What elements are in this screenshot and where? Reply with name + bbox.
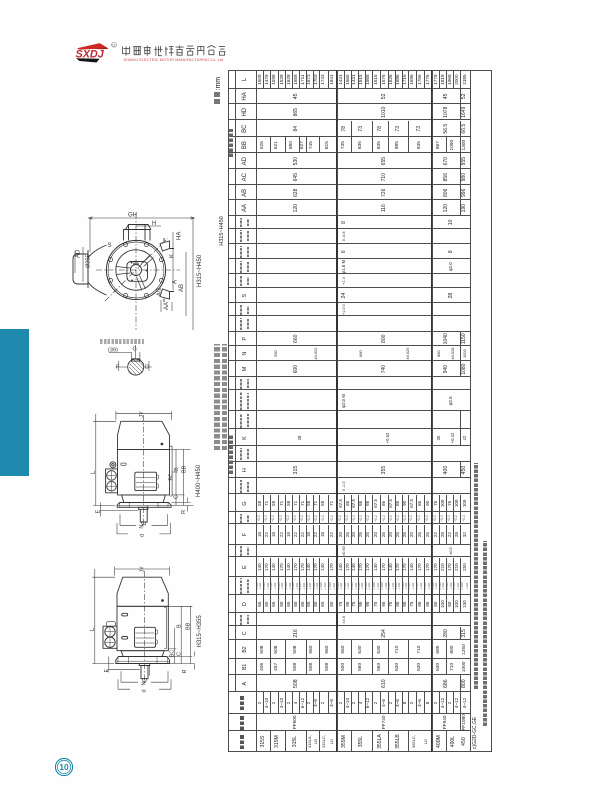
svg-text:F: F bbox=[116, 365, 120, 371]
svg-text:AB: AB bbox=[179, 284, 185, 292]
svg-text:E: E bbox=[95, 510, 101, 514]
svg-text:K: K bbox=[170, 254, 176, 258]
svg-text:D: D bbox=[145, 365, 149, 371]
svg-text:G: G bbox=[133, 347, 137, 353]
svg-text:H: H bbox=[152, 221, 156, 227]
svg-text:d: d bbox=[139, 534, 145, 537]
svg-text:SHANXI ELECTRIC MOTOR MANUF: SHANXI ELECTRIC MOTOR MANUFACTURING Co.,… bbox=[124, 58, 224, 62]
svg-text:BC: BC bbox=[170, 650, 176, 657]
svg-text:R: R bbox=[182, 670, 188, 674]
svg-text:AD: AD bbox=[76, 249, 82, 258]
svg-text:N: N bbox=[139, 525, 145, 529]
svg-text:HA: HA bbox=[177, 232, 183, 240]
svg-text:Ø255: Ø255 bbox=[86, 255, 92, 268]
svg-text:JY: JY bbox=[140, 566, 146, 573]
svg-text:AA: AA bbox=[164, 302, 170, 310]
svg-text:BB: BB bbox=[186, 622, 192, 630]
svg-text:GH: GH bbox=[128, 213, 137, 219]
svg-text:E: E bbox=[104, 669, 110, 673]
svg-text:S: S bbox=[108, 243, 112, 249]
svg-text:N: N bbox=[142, 682, 148, 686]
svg-text:BB: BB bbox=[181, 465, 187, 473]
svg-text:B: B bbox=[176, 624, 182, 628]
svg-text:(39): (39) bbox=[108, 348, 118, 354]
svg-text:H400~H450: H400~H450 bbox=[196, 464, 202, 497]
svg-text:C: C bbox=[177, 652, 183, 656]
svg-text:10: 10 bbox=[59, 762, 69, 772]
svg-text:H315~H450: H315~H450 bbox=[197, 254, 203, 287]
svg-text:R: R bbox=[112, 43, 115, 48]
svg-text:B: B bbox=[174, 467, 180, 471]
svg-text:JY: JY bbox=[139, 411, 145, 418]
svg-text:H315~H355: H315~H355 bbox=[197, 615, 203, 648]
svg-text:C: C bbox=[174, 495, 180, 499]
svg-text:A: A bbox=[173, 280, 179, 284]
svg-text:R: R bbox=[181, 510, 187, 514]
svg-text:d: d bbox=[142, 689, 148, 692]
svg-text:A/2: A/2 bbox=[157, 288, 163, 296]
svg-text:BC: BC bbox=[168, 473, 174, 480]
